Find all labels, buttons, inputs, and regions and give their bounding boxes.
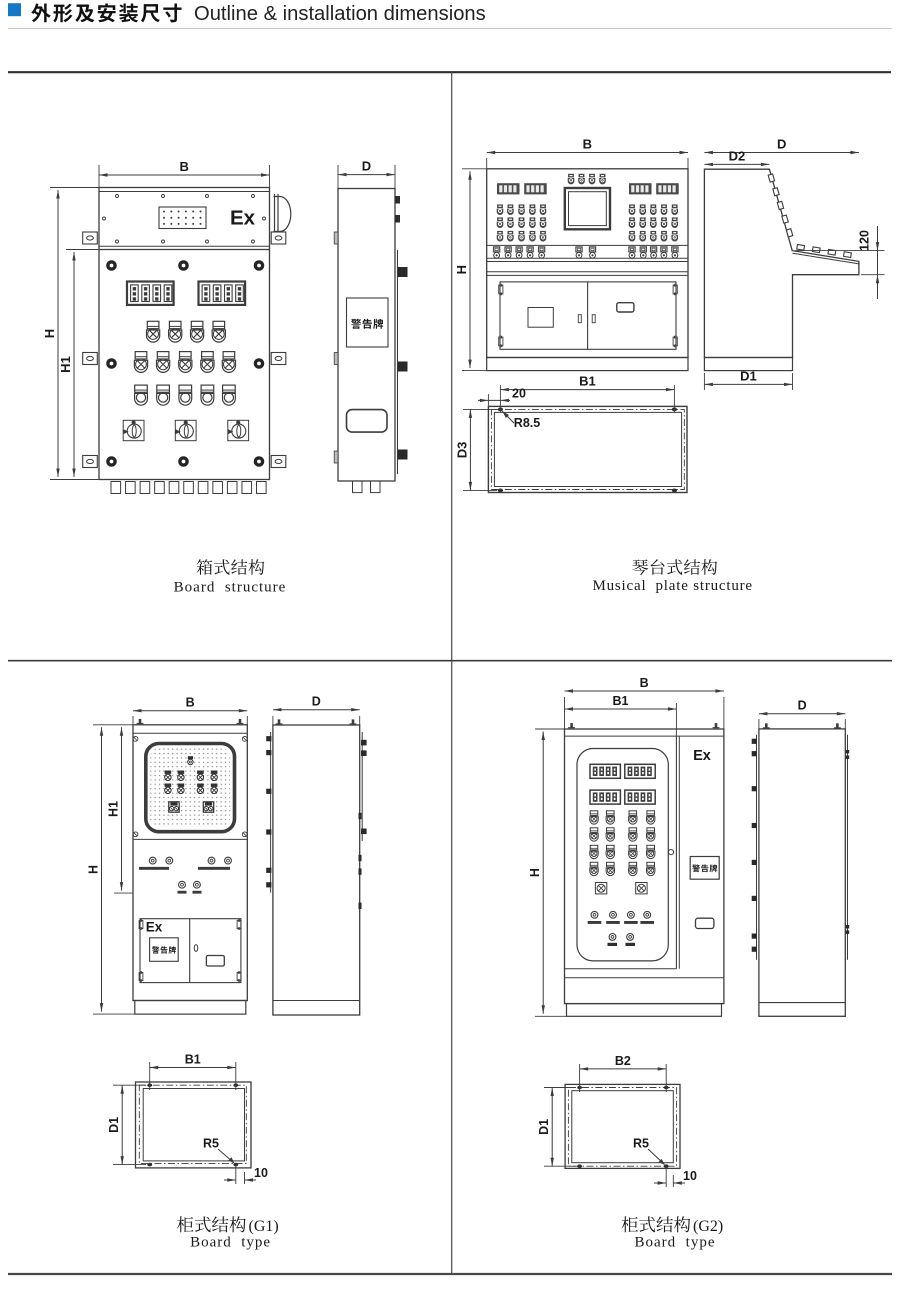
svg-text:B2: B2 (615, 1054, 631, 1068)
svg-text:(G1): (G1) (249, 1218, 279, 1235)
svg-text:Outline & installation dimensi: Outline & installation dimensions (194, 3, 486, 25)
svg-text:B: B (640, 676, 649, 690)
svg-text:H1: H1 (58, 356, 73, 373)
svg-text:D: D (362, 159, 371, 174)
svg-text:D1: D1 (107, 1117, 121, 1133)
svg-text:R5: R5 (633, 1137, 649, 1151)
svg-text:120: 120 (858, 230, 872, 251)
svg-text:D2: D2 (729, 148, 746, 163)
svg-text:H: H (454, 265, 469, 274)
svg-text:Ex: Ex (146, 920, 163, 935)
svg-text:Ex: Ex (230, 207, 256, 230)
svg-text:Board structure: Board structure (174, 580, 287, 596)
svg-text:B1: B1 (579, 374, 596, 389)
svg-text:D: D (798, 699, 807, 713)
svg-text:D1: D1 (537, 1119, 551, 1135)
svg-text:D: D (777, 137, 786, 152)
svg-text:D1: D1 (740, 368, 757, 383)
svg-text:B1: B1 (612, 694, 628, 708)
svg-text:Board type: Board type (190, 1235, 271, 1251)
svg-text:Ex: Ex (693, 748, 711, 764)
svg-text:R8.5: R8.5 (514, 416, 540, 430)
svg-text:B1: B1 (185, 1053, 201, 1067)
svg-text:H: H (87, 865, 101, 874)
svg-text:H: H (42, 329, 57, 338)
svg-text:10: 10 (683, 1169, 697, 1183)
svg-text:20: 20 (512, 387, 526, 401)
svg-text:H: H (528, 868, 542, 877)
svg-text:Musical plate structure: Musical plate structure (592, 578, 752, 594)
svg-text:Board type: Board type (635, 1235, 716, 1251)
svg-text:R5: R5 (203, 1137, 219, 1151)
svg-text:B: B (186, 696, 195, 710)
svg-text:H1: H1 (107, 801, 121, 817)
svg-text:D: D (312, 695, 321, 709)
svg-text:10: 10 (254, 1166, 268, 1180)
svg-text:(G2): (G2) (693, 1218, 723, 1235)
svg-text:D3: D3 (454, 442, 469, 459)
svg-text:B: B (180, 159, 189, 174)
svg-text:B: B (583, 137, 592, 152)
